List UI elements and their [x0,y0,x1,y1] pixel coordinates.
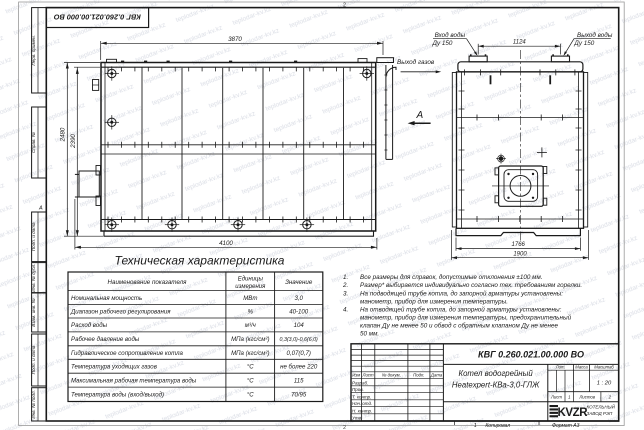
svg-text:Ду 150: Ду 150 [573,40,594,47]
svg-text:Подп. и дата: Подп. и дата [31,345,36,374]
svg-text:На подводящей трубе котла, до: На подводящей трубе котла, до запорной а… [360,289,563,297]
svg-text:Т. контр.: Т. контр. [352,394,371,399]
svg-text:Перв. примен.: Перв. примен. [31,35,36,66]
svg-text:Диапазон рабочего регулировани: Диапазон рабочего регулирования [70,309,171,316]
svg-text:KVZR: KVZR [558,407,589,419]
svg-text:4.: 4. [343,306,348,313]
svg-text:Температура уходящих газов: Температура уходящих газов [71,364,157,371]
svg-text:3,0: 3,0 [294,295,303,302]
svg-text:Масштаб: Масштаб [594,365,614,370]
svg-text:МВт: МВт [243,295,257,302]
svg-text:Котел водогрейный: Котел водогрейный [459,369,534,378]
svg-text:Листов: Листов [578,395,595,400]
svg-text:Гидравлическое сопротивление к: Гидравлическое сопротивление котла [71,350,184,357]
svg-text:Выход газов: Выход газов [397,58,435,66]
svg-text:Рабочее давление воды: Рабочее давление воды [71,336,140,343]
svg-text:ЗАВОД РЭП: ЗАВОД РЭП [587,411,614,416]
svg-text:На отводящей трубе котла, до з: На отводящей трубе котла, до запорной ар… [360,305,562,313]
svg-text:Лист: Лист [362,373,374,378]
svg-text:Выход воды: Выход воды [577,31,613,39]
svg-text:°С: °С [247,392,254,399]
svg-text:115: 115 [294,377,304,384]
svg-text:70/95: 70/95 [291,392,307,399]
svg-text:манометр, прибор для измерения: манометр, прибор для измерения температу… [360,297,508,305]
svg-text:Наименование показателя: Наименование показателя [108,279,188,286]
svg-text:Подп. и дата: Подп. и дата [31,222,36,251]
svg-text:А: А [416,110,424,121]
svg-text:манометр, прибор для измерения: манометр, прибор для измерения температу… [360,314,572,322]
svg-text:50 мм.: 50 мм. [360,331,379,338]
svg-text:КВГ 0.260.021.00.000 ВО: КВГ 0.260.021.00.000 ВО [478,349,584,359]
svg-text:Вход воды: Вход воды [435,31,466,39]
svg-text:1.: 1. [343,274,348,281]
svg-text:А: А [38,206,43,212]
svg-text:Все размеры для справок, допус: Все размеры для справок, допустимые откл… [360,273,543,281]
svg-text:Масса: Масса [575,365,588,370]
svg-text:Утв.: Утв. [352,415,362,420]
svg-text:Нач. отд.: Нач. отд. [352,401,372,406]
svg-text:Размер* выбирается индивидуаль: Размер* выбирается индивидуально согласн… [360,281,582,289]
svg-text:Температура воды (вход/выход): Температура воды (вход/выход) [71,392,164,399]
svg-text:Значение: Значение [285,279,313,286]
svg-text:3870: 3870 [228,36,242,43]
svg-text:Справ. №: Справ. № [31,132,36,153]
svg-text:1766: 1766 [512,242,526,248]
svg-text:Лист: Лист [550,395,562,400]
svg-text:40-100: 40-100 [289,309,309,316]
svg-text:КВГ 0.260.021.00.000 ВО: КВГ 0.260.021.00.000 ВО [54,13,141,22]
svg-text:Техническая характеристика: Техническая характеристика [115,254,285,268]
svg-text:Инв. № подл.: Инв. № подл. [31,390,36,419]
svg-text:4100: 4100 [219,240,233,247]
svg-text:1: 1 [474,423,477,429]
svg-text:МПа (кгс/см²): МПа (кгс/см²) [231,350,269,357]
svg-text:104: 104 [294,322,305,329]
svg-text:Единицы: Единицы [238,277,264,283]
svg-text:Ду 150: Ду 150 [432,40,453,47]
svg-text:МПа (кгс/см²): МПа (кгс/см²) [231,336,269,343]
svg-text:1124: 1124 [513,40,527,46]
svg-text:0,3(3,0)-0,6(6,0): 0,3(3,0)-0,6(6,0) [280,337,319,343]
svg-text:№ докум.: № докум. [382,373,401,378]
svg-text:Н. контр.: Н. контр. [352,408,372,413]
svg-text:1 : 20: 1 : 20 [597,381,612,387]
svg-text:3.: 3. [343,290,348,297]
svg-text:Формат А3: Формат А3 [552,423,580,429]
svg-text:Разраб.: Разраб. [352,380,368,385]
svg-text:КОТЕЛЬНЫЙ: КОТЕЛЬНЫЙ [587,403,616,410]
svg-text:Дата: Дата [430,373,443,378]
svg-text:°С: °С [247,364,254,371]
svg-text:Максимальная рабочая температу: Максимальная рабочая температура воды [71,377,197,384]
svg-text:Номинальная мощность: Номинальная мощность [71,295,142,302]
svg-text:Изм: Изм [352,373,360,378]
svg-text:2390: 2390 [70,134,77,149]
svg-text:2: 2 [343,425,346,430]
svg-text:2: 2 [343,3,346,9]
svg-text:измерения: измерения [235,284,266,290]
svg-text:Взам. инв. №: Взам. инв. № [31,298,36,326]
svg-text:1900: 1900 [513,251,527,257]
svg-text:%: % [248,309,254,316]
svg-text:Расход воды: Расход воды [71,322,108,329]
svg-text:2480: 2480 [60,127,67,142]
svg-text:2.: 2. [342,282,348,289]
svg-text:0,07(0,7): 0,07(0,7) [287,350,311,357]
svg-text:Heatexpert-КВа-3,0-ГЛЖ: Heatexpert-КВа-3,0-ГЛЖ [452,381,540,390]
svg-text:м³/ч: м³/ч [245,322,257,329]
svg-text:Лит.: Лит. [555,365,566,370]
svg-text:Копировал: Копировал [485,423,510,429]
svg-text:Инв. № дубл.: Инв. № дубл. [31,263,36,291]
svg-text:Подп.: Подп. [413,373,424,378]
svg-text:клапан Ду не менее 50 и обвод: клапан Ду не менее 50 и обвод с обратным… [360,322,558,330]
svg-text:Пров.: Пров. [352,387,364,392]
svg-text:°С: °С [247,377,254,384]
svg-text:не более 220: не более 220 [280,364,318,371]
